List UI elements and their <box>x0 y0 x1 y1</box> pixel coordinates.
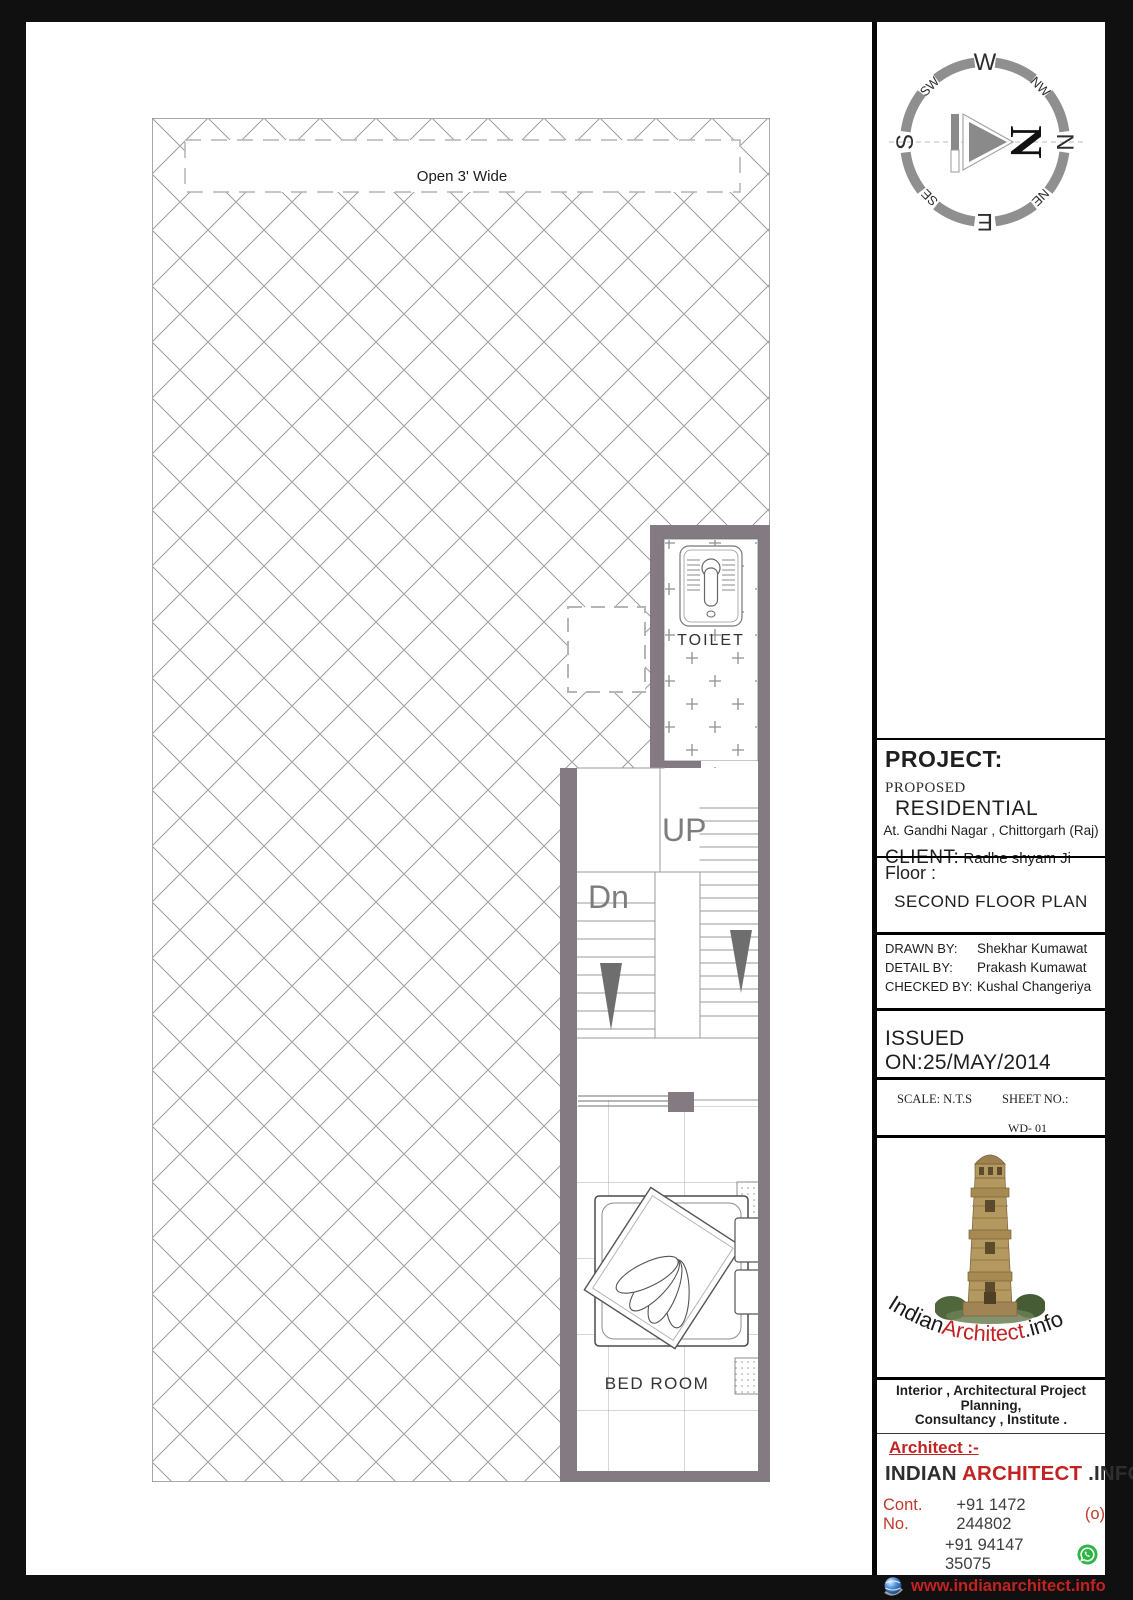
compass-s: S <box>892 134 919 150</box>
website-link: www.indianarchitect.info <box>911 1577 1106 1596</box>
compass-e: E <box>977 208 993 235</box>
logo-text-indian: Indian <box>884 1290 947 1338</box>
tagline-line1: Interior , Architectural Project Plannin… <box>877 1384 1105 1413</box>
scale-section: SCALE: N.T.S SHEET NO.: WD- 01 <box>877 1077 1105 1138</box>
pillow-1 <box>735 1218 762 1262</box>
sheet-no-value: WD- 01 <box>1002 1107 1068 1136</box>
contact-label: Cont. No. <box>883 1496 950 1534</box>
firm-architect: ARCHITECT <box>962 1462 1082 1485</box>
whatsapp-icon <box>1077 1544 1098 1565</box>
issued-section: ISSUED ON:25/MAY/2014 <box>877 1008 1105 1077</box>
drawn-by-label: DRAWN BY: <box>885 941 977 956</box>
svg-text:IndianArchitect.info: IndianArchitect.info <box>884 1290 1067 1346</box>
staircase: UP Dn <box>577 768 758 1100</box>
tagline-line2: Consultancy , Institute . <box>877 1413 1105 1428</box>
dn-label: Dn <box>588 879 629 915</box>
bed <box>584 1188 762 1349</box>
compass-needle <box>951 114 1013 172</box>
issued-on-date: 25/MAY/2014 <box>923 1051 1051 1074</box>
checked-by-value: Kushal Changeriya <box>977 979 1091 994</box>
north-compass: N NE E SE S SW W NW N <box>885 42 1085 242</box>
phone2: +91 94147 35075 <box>945 1536 1070 1574</box>
rule <box>877 1433 1105 1434</box>
project-heading: PROJECT: <box>877 740 1105 773</box>
project-section: PROJECT: PROPOSED RESIDENTIAL At. Gandhi… <box>877 738 1105 856</box>
checked-by-label: CHECKED BY: <box>885 979 977 994</box>
staff-section: DRAWN BY: Shekhar Kumawat DETAIL BY: Pra… <box>877 932 1105 1008</box>
globe-icon <box>883 1576 904 1597</box>
phone1: +91 1472 244802 <box>956 1496 1081 1534</box>
logo-text-architect: Architect <box>940 1314 1027 1346</box>
phone1-suffix: (o) <box>1085 1505 1105 1524</box>
scale-label: SCALE: N.T.S <box>897 1092 1002 1136</box>
logo-area: IndianArchitect.info <box>877 1138 1105 1376</box>
architect-label: Architect :- <box>877 1438 1105 1458</box>
contact-section: Interior , Architectural Project Plannin… <box>877 1377 1105 1576</box>
sheet-no-label: SHEET NO.: <box>1002 1092 1068 1106</box>
drawing-sheet: Open 3' Wide TOILET <box>0 0 1133 1600</box>
firm-info: .INFO <box>1088 1462 1133 1485</box>
toilet-label: TOILET <box>677 632 745 649</box>
proposed-label: PROPOSED <box>885 780 966 796</box>
compass-n: N <box>1051 133 1078 150</box>
up-label: UP <box>662 812 706 848</box>
logo-text-info: .info <box>1021 1306 1067 1342</box>
detail-by-value: Prakash Kumawat <box>977 960 1087 975</box>
open-strip: Open 3' Wide <box>185 140 740 192</box>
floor-label: Floor : <box>877 858 1105 884</box>
logo-curved-text: IndianArchitect.info <box>877 1284 1105 1376</box>
dashed-opening <box>568 607 645 692</box>
bedroom: BED ROOM <box>577 1092 770 1471</box>
floor-plan-drawing: Open 3' Wide TOILET <box>152 118 770 1482</box>
floor-section: Floor : SECOND FLOOR PLAN <box>877 856 1105 932</box>
detail-by-label: DETAIL BY: <box>885 960 977 975</box>
firm-indian: INDIAN <box>885 1462 957 1485</box>
bedroom-label: BED ROOM <box>605 1374 710 1393</box>
firm-name: INDIAN ARCHITECT .INFO <box>877 1458 1105 1486</box>
project-type: RESIDENTIAL <box>895 797 1038 820</box>
drawn-by-value: Shekhar Kumawat <box>977 941 1087 956</box>
floor-name: SECOND FLOOR PLAN <box>877 884 1105 912</box>
compass-w: W <box>974 49 997 76</box>
toilet-fixture <box>680 546 742 626</box>
pillow-2 <box>735 1270 762 1314</box>
project-address: At. Gandhi Nagar , Chittorgarh (Raj) <box>877 821 1105 838</box>
open-strip-label: Open 3' Wide <box>417 168 507 185</box>
toilet-room: TOILET <box>650 525 770 793</box>
